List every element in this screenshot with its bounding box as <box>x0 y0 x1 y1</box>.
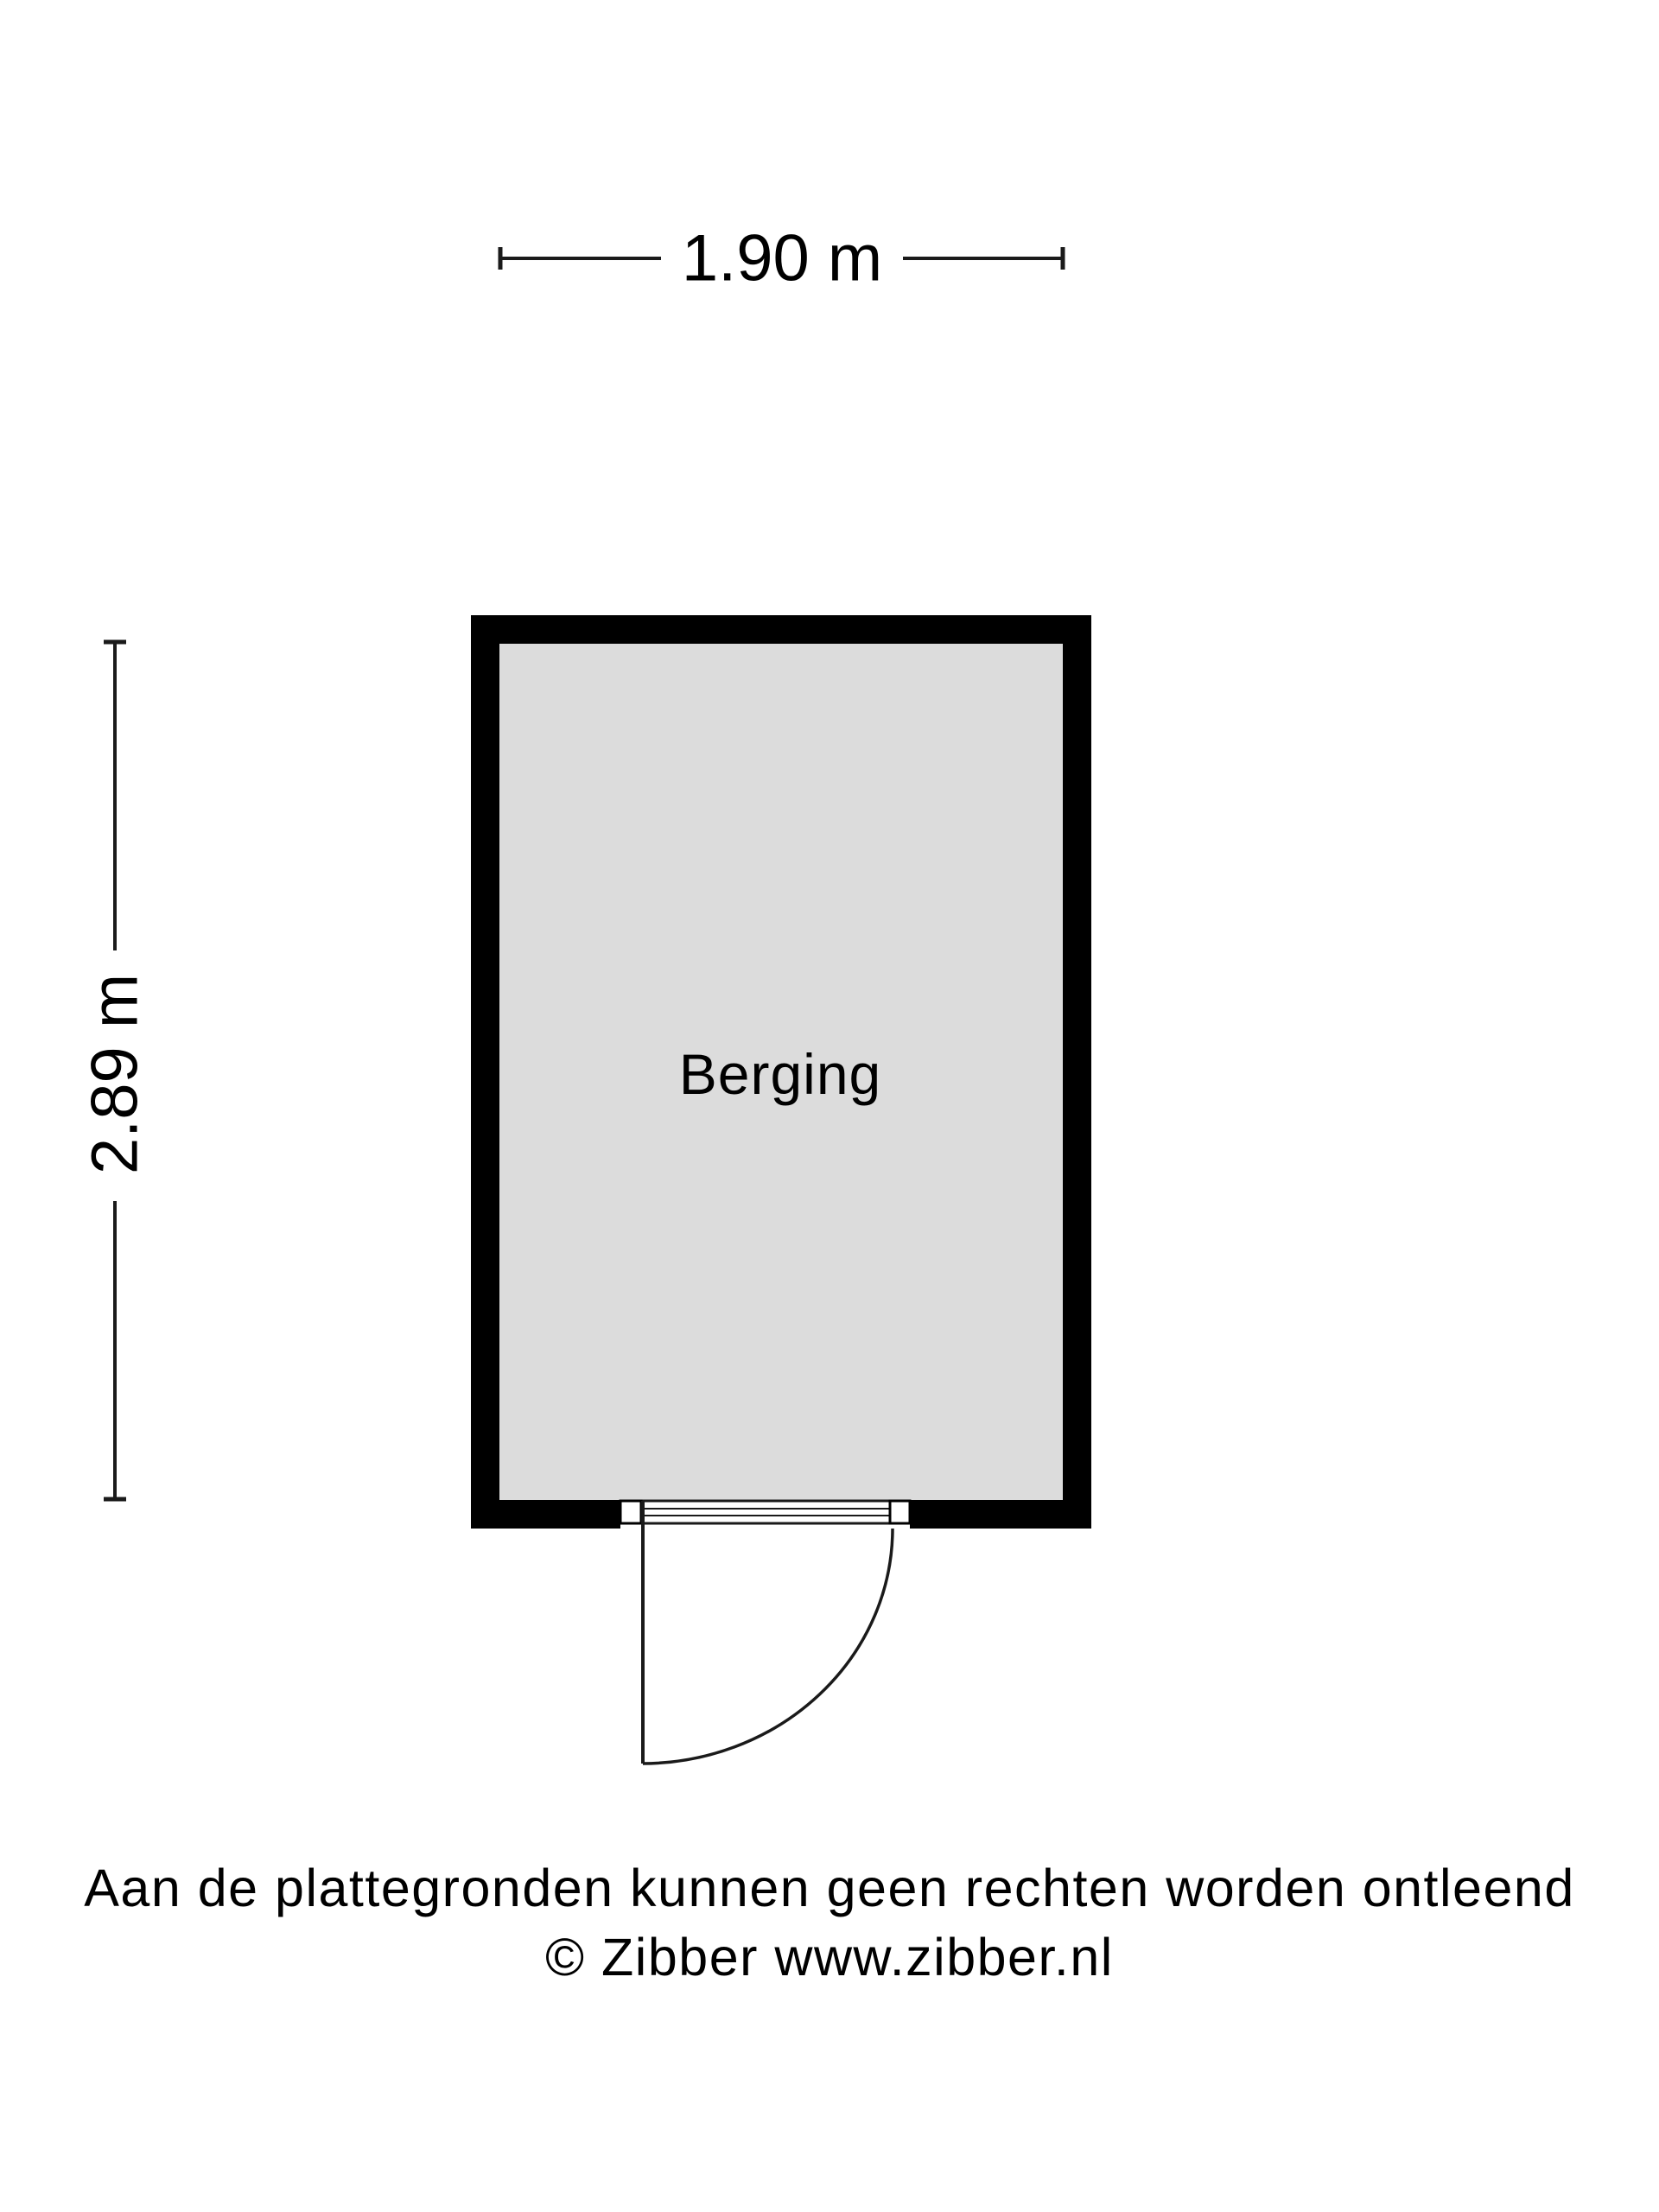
door-jamb-right <box>890 1501 910 1523</box>
door-jamb-left <box>620 1501 641 1523</box>
height-dimension-label: 2.89 m <box>78 974 153 1174</box>
floorplan-canvas: 1.90 m 2.89 m Berging Aan de plattegrond… <box>0 0 1659 2212</box>
disclaimer-text: Aan de plattegronden kunnen geen rechten… <box>0 1853 1659 1923</box>
door-threshold <box>641 1501 890 1523</box>
door-swing-arc <box>643 1529 893 1764</box>
width-dimension-label: 1.90 m <box>682 221 882 296</box>
copyright-text: © Zibber www.zibber.nl <box>0 1923 1659 1992</box>
room-name-label: Berging <box>679 1041 882 1107</box>
footer: Aan de plattegronden kunnen geen rechten… <box>0 1853 1659 1992</box>
